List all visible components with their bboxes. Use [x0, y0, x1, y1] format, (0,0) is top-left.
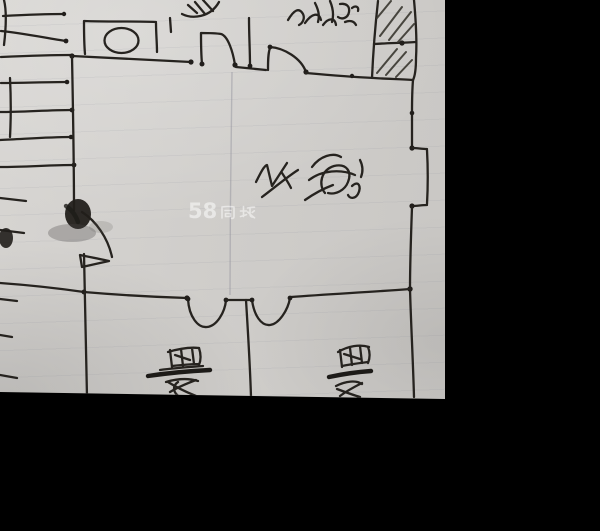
top-fixture-scribble [182, 0, 219, 17]
bathtub-fixture [105, 28, 139, 53]
label-bottom-right-room [329, 346, 371, 397]
watermark-number: 58 [188, 201, 217, 222]
stairs-door-and-smudge [48, 199, 113, 267]
hatched-shaft [372, 0, 416, 80]
floor-plan-drawing [0, 0, 445, 400]
letterbox-background: 58 [0, 0, 600, 531]
label-top-right-room [288, 1, 358, 25]
watermark-glyph-tong [220, 203, 236, 220]
label-bottom-left-room [148, 348, 210, 397]
watermark-glyph-cheng [239, 203, 256, 220]
paper-crease [230, 72, 232, 295]
watermark: 58 [188, 201, 256, 222]
window [412, 148, 428, 206]
label-living-room [256, 155, 362, 200]
staircase-treads [0, 0, 76, 378]
photo-canvas: 58 [0, 0, 445, 400]
